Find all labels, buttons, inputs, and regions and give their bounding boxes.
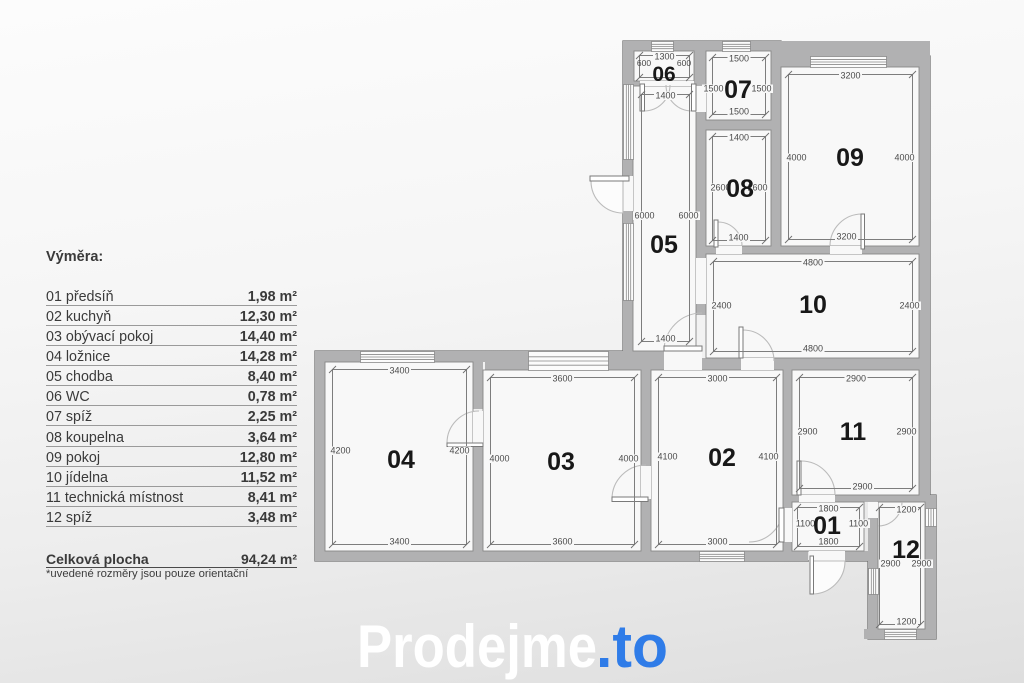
svg-text:3200: 3200 (836, 232, 856, 242)
svg-text:3200: 3200 (840, 71, 860, 81)
svg-text:08: 08 (726, 175, 754, 203)
svg-text:3000: 3000 (707, 374, 727, 384)
svg-text:4000: 4000 (786, 153, 806, 163)
svg-text:04: 04 (387, 446, 415, 474)
svg-text:11: 11 (840, 418, 867, 446)
svg-text:4000: 4000 (489, 454, 509, 464)
svg-text:3600: 3600 (552, 537, 572, 547)
svg-text:02: 02 (708, 444, 736, 472)
svg-text:1400: 1400 (728, 233, 748, 243)
svg-text:1500: 1500 (703, 84, 723, 94)
svg-text:6000: 6000 (678, 211, 698, 221)
svg-text:1200: 1200 (896, 617, 916, 627)
svg-text:06: 06 (652, 63, 675, 86)
svg-text:3600: 3600 (552, 374, 572, 384)
svg-text:07: 07 (724, 76, 752, 104)
svg-text:01: 01 (813, 512, 841, 540)
svg-text:12: 12 (892, 536, 920, 564)
svg-text:600: 600 (677, 58, 691, 68)
svg-text:4200: 4200 (330, 446, 350, 456)
svg-text:4100: 4100 (758, 452, 778, 462)
svg-text:4200: 4200 (449, 446, 469, 456)
svg-text:2900: 2900 (797, 427, 817, 437)
svg-text:09: 09 (836, 144, 864, 172)
svg-text:03: 03 (547, 448, 575, 476)
svg-text:1400: 1400 (729, 133, 749, 143)
svg-text:2900: 2900 (896, 427, 916, 437)
svg-text:2900: 2900 (852, 482, 872, 492)
svg-text:3000: 3000 (707, 537, 727, 547)
svg-text:1500: 1500 (729, 54, 749, 64)
svg-text:1400: 1400 (655, 334, 675, 344)
svg-text:4000: 4000 (618, 454, 638, 464)
svg-text:1300: 1300 (654, 52, 674, 62)
svg-text:05: 05 (650, 231, 678, 259)
svg-text:1500: 1500 (751, 84, 771, 94)
svg-text:1100: 1100 (849, 519, 868, 529)
svg-text:2400: 2400 (711, 301, 731, 311)
svg-text:3400: 3400 (389, 366, 409, 376)
svg-text:2400: 2400 (899, 301, 919, 311)
svg-text:1400: 1400 (655, 91, 675, 101)
svg-text:4100: 4100 (657, 452, 677, 462)
svg-text:4800: 4800 (803, 344, 823, 354)
svg-text:3400: 3400 (389, 537, 409, 547)
svg-text:2900: 2900 (846, 374, 866, 384)
svg-text:6000: 6000 (634, 211, 654, 221)
svg-text:1200: 1200 (896, 505, 916, 515)
svg-text:10: 10 (799, 291, 827, 319)
svg-text:1500: 1500 (729, 107, 749, 117)
svg-text:4000: 4000 (894, 153, 914, 163)
svg-text:600: 600 (637, 58, 651, 68)
svg-text:4800: 4800 (803, 258, 823, 268)
